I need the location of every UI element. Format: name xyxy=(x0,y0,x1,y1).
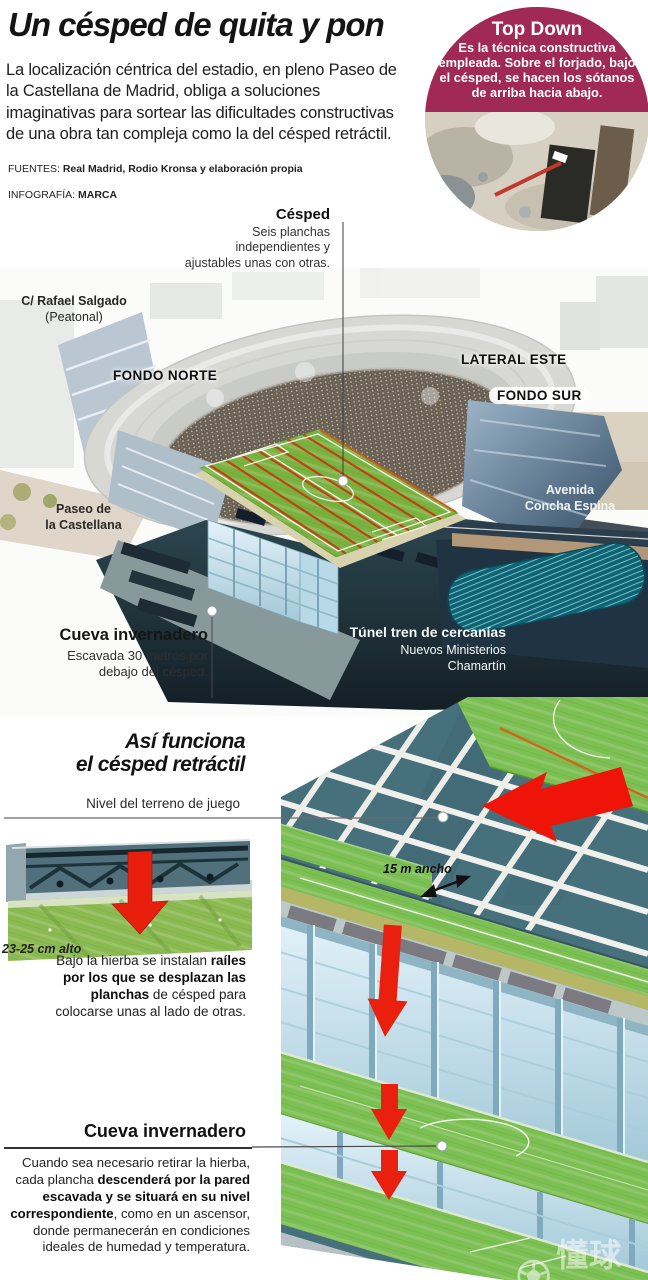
avenida-label: Avenida Concha Espina xyxy=(523,482,617,515)
sources-line: FUENTES: Real Madrid, Rodio Kronsa y ela… xyxy=(8,163,303,175)
watermark: 懂球帝 xyxy=(516,1230,648,1280)
street-line1: C/ Rafael Salgado xyxy=(18,294,130,310)
tunel-line3: Chamartín xyxy=(336,658,506,674)
top-down-circle: Top Down Es la técnica constructiva empl… xyxy=(425,7,648,231)
top-down-title: Top Down xyxy=(425,19,648,41)
cesped-title: Césped xyxy=(178,206,330,223)
avenida-line1: Avenida xyxy=(523,482,617,498)
rails-paragraph: Bajo la hierba se instalan raíles por lo… xyxy=(44,952,246,1021)
paseo-line1: Paseo de xyxy=(36,502,131,518)
page-title: Un césped de quita y pon xyxy=(8,6,428,44)
cueva-leader-dot xyxy=(207,606,217,616)
football-logo-icon xyxy=(516,1257,551,1280)
sources-value: Real Madrid, Rodio Kronsa y elaboración … xyxy=(63,163,303,175)
stand-label-east: LATERAL ESTE xyxy=(461,352,567,367)
cueva-title: Cueva invernadero xyxy=(36,626,208,645)
cave-level-dot xyxy=(437,1141,447,1151)
mechanism-title-line1: Así funciona xyxy=(30,730,245,753)
floodlight-glare xyxy=(295,362,315,382)
intro-paragraph: La localización céntrica del estadio, en… xyxy=(6,60,406,146)
tunel-title: Túnel tren de cercanías xyxy=(336,624,506,640)
cesped-label: Césped Seis planchas independientes y aj… xyxy=(178,206,330,271)
paseo-label: Paseo de la Castellana xyxy=(36,502,131,533)
floodlight-glare xyxy=(421,387,439,405)
cueva-body: Escavada 30 metros por debajo del césped… xyxy=(36,648,208,681)
street-label: C/ Rafael Salgado (Peatonal) xyxy=(18,294,130,325)
cesped-leader-dot xyxy=(338,476,348,486)
cueva-label: Cueva invernadero Escavada 30 metros por… xyxy=(36,626,208,681)
street-line2: (Peatonal) xyxy=(18,310,130,326)
plank-width-label: 15 m ancho xyxy=(383,862,452,876)
sources-label: FUENTES: xyxy=(8,163,60,175)
stand-label-south: FONDO SUR xyxy=(489,387,590,404)
cave-paragraph: Cuando sea necesario retirar la hierba, … xyxy=(6,1155,250,1256)
stand-label-north: FONDO NORTE xyxy=(113,368,217,383)
cesped-body: Seis planchas independientes y ajustable… xyxy=(178,225,330,271)
tunel-line2: Nuevos Ministerios xyxy=(336,642,506,658)
mechanism-title: Así funciona el césped retráctil xyxy=(30,730,245,776)
credit-label: INFOGRAFÍA: xyxy=(8,189,75,201)
cave-section-title: Cueva invernadero xyxy=(56,1121,246,1142)
mechanism-title-line2: el césped retráctil xyxy=(30,753,245,776)
credit-line: INFOGRAFÍA: MARCA xyxy=(8,189,117,201)
tunel-label: Túnel tren de cercanías Nuevos Ministeri… xyxy=(336,624,506,675)
ground-level-dot xyxy=(438,812,448,822)
avenida-line2: Concha Espina xyxy=(523,498,617,514)
ground-level-label: Nivel del terreno de juego xyxy=(55,796,240,811)
rails-text-post: de césped para colocarse unas al lado de… xyxy=(55,987,246,1019)
credit-value: MARCA xyxy=(78,189,117,201)
floodlight-glare xyxy=(206,389,224,407)
infographic-canvas: Top Down Es la técnica constructiva empl… xyxy=(0,0,648,1280)
paseo-line2: la Castellana xyxy=(36,518,131,534)
top-down-body: Es la técnica constructiva empleada. Sob… xyxy=(432,41,642,100)
rails-text-pre: Bajo la hierba se instalan xyxy=(56,953,211,968)
watermark-text: 懂球帝 xyxy=(556,1230,648,1280)
